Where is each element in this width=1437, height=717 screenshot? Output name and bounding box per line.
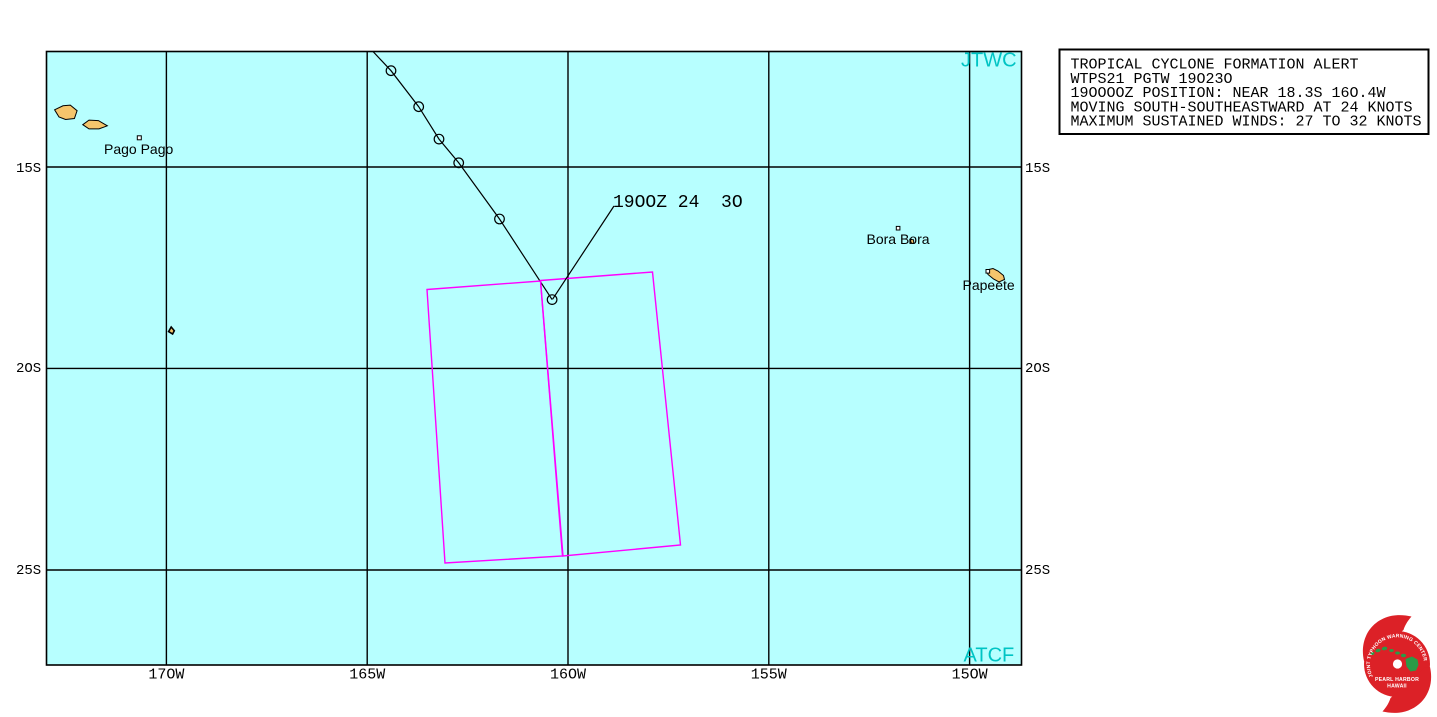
svg-text:19OOZ 24 3O: 19OOZ 24 3O [613, 193, 743, 213]
svg-text:15OW: 15OW [952, 667, 988, 684]
svg-text:Papeete: Papeete [963, 277, 1015, 293]
svg-text:2OS: 2OS [16, 361, 41, 377]
svg-text:165W: 165W [349, 667, 385, 684]
svg-text:HAWAII: HAWAII [1387, 684, 1407, 690]
svg-text:Pago Pago: Pago Pago [104, 141, 173, 157]
svg-text:25S: 25S [16, 563, 41, 579]
svg-text:15S: 15S [1025, 161, 1050, 177]
svg-text:JTWC: JTWC [961, 50, 1017, 72]
svg-text:PEARL HARBOR: PEARL HARBOR [1375, 677, 1419, 683]
svg-text:MAXIMUM SUSTAINED WINDS: 27 TO: MAXIMUM SUSTAINED WINDS: 27 TO 32 KNOTS [1071, 114, 1422, 131]
svg-text:16OW: 16OW [550, 667, 586, 684]
svg-text:15S: 15S [16, 161, 41, 177]
svg-text:17OW: 17OW [148, 667, 184, 684]
svg-text:ATCF: ATCF [964, 645, 1015, 667]
svg-text:25S: 25S [1025, 563, 1050, 579]
svg-text:155W: 155W [751, 667, 787, 684]
svg-text:2OS: 2OS [1025, 361, 1050, 377]
svg-text:Bora Bora: Bora Bora [867, 231, 930, 247]
